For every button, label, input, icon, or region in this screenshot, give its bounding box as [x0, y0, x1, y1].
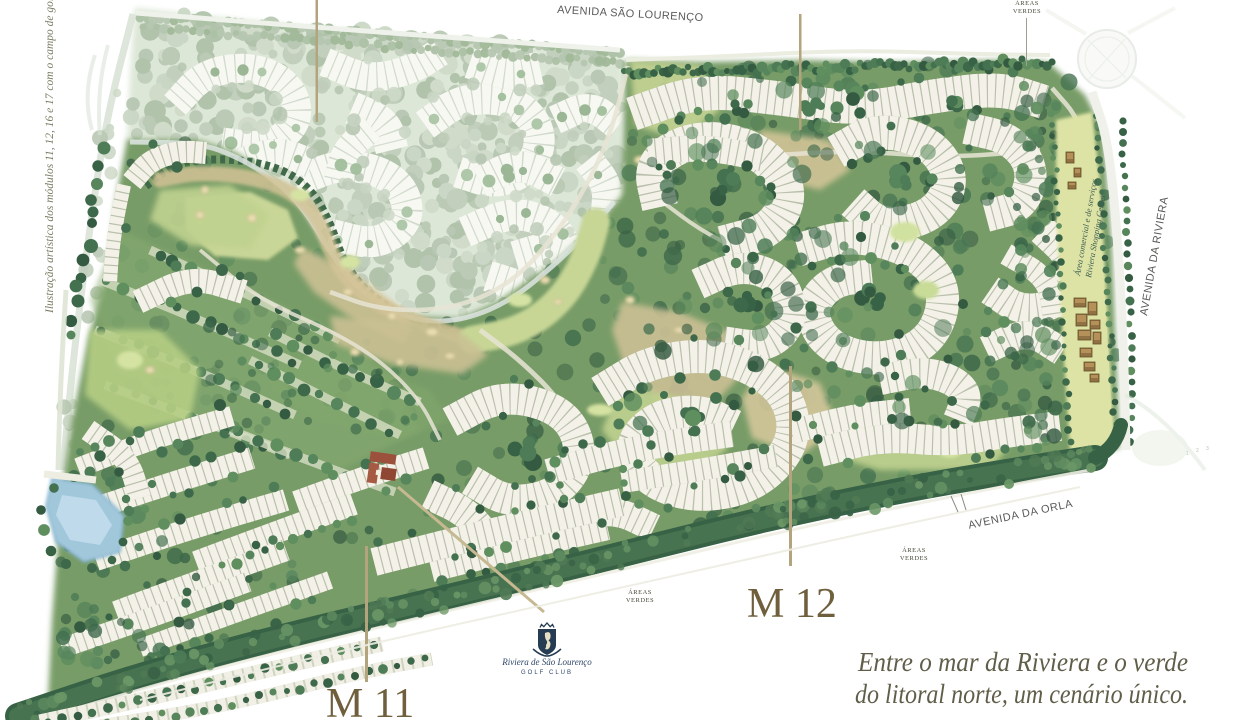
- svg-text:1: 1: [1186, 451, 1189, 457]
- svg-text:M 12: M 12: [747, 581, 837, 627]
- svg-text:VERDES: VERDES: [900, 555, 928, 562]
- svg-text:ÁREAS: ÁREAS: [628, 588, 652, 596]
- svg-text:2: 2: [1196, 448, 1199, 454]
- svg-text:Entre o mar da Riviera e o ver: Entre o mar da Riviera e o verde: [857, 647, 1188, 677]
- svg-text:GOLF CLUB: GOLF CLUB: [521, 670, 573, 676]
- svg-text:Riviera de São Lourenço: Riviera de São Lourenço: [501, 657, 592, 667]
- svg-text:do litoral norte, um cenário ú: do litoral norte, um cenário único.: [855, 679, 1188, 709]
- svg-text:3: 3: [1206, 446, 1209, 452]
- svg-text:VERDES: VERDES: [626, 597, 654, 604]
- svg-text:ÁREAS: ÁREAS: [1015, 0, 1039, 7]
- svg-text:ÁREAS: ÁREAS: [902, 546, 926, 554]
- svg-text:M 11: M 11: [326, 681, 414, 720]
- svg-text:VERDES: VERDES: [1013, 8, 1041, 15]
- svg-text:Ilustração artística dos módul: Ilustração artística dos módulos 11, 12,…: [44, 0, 56, 314]
